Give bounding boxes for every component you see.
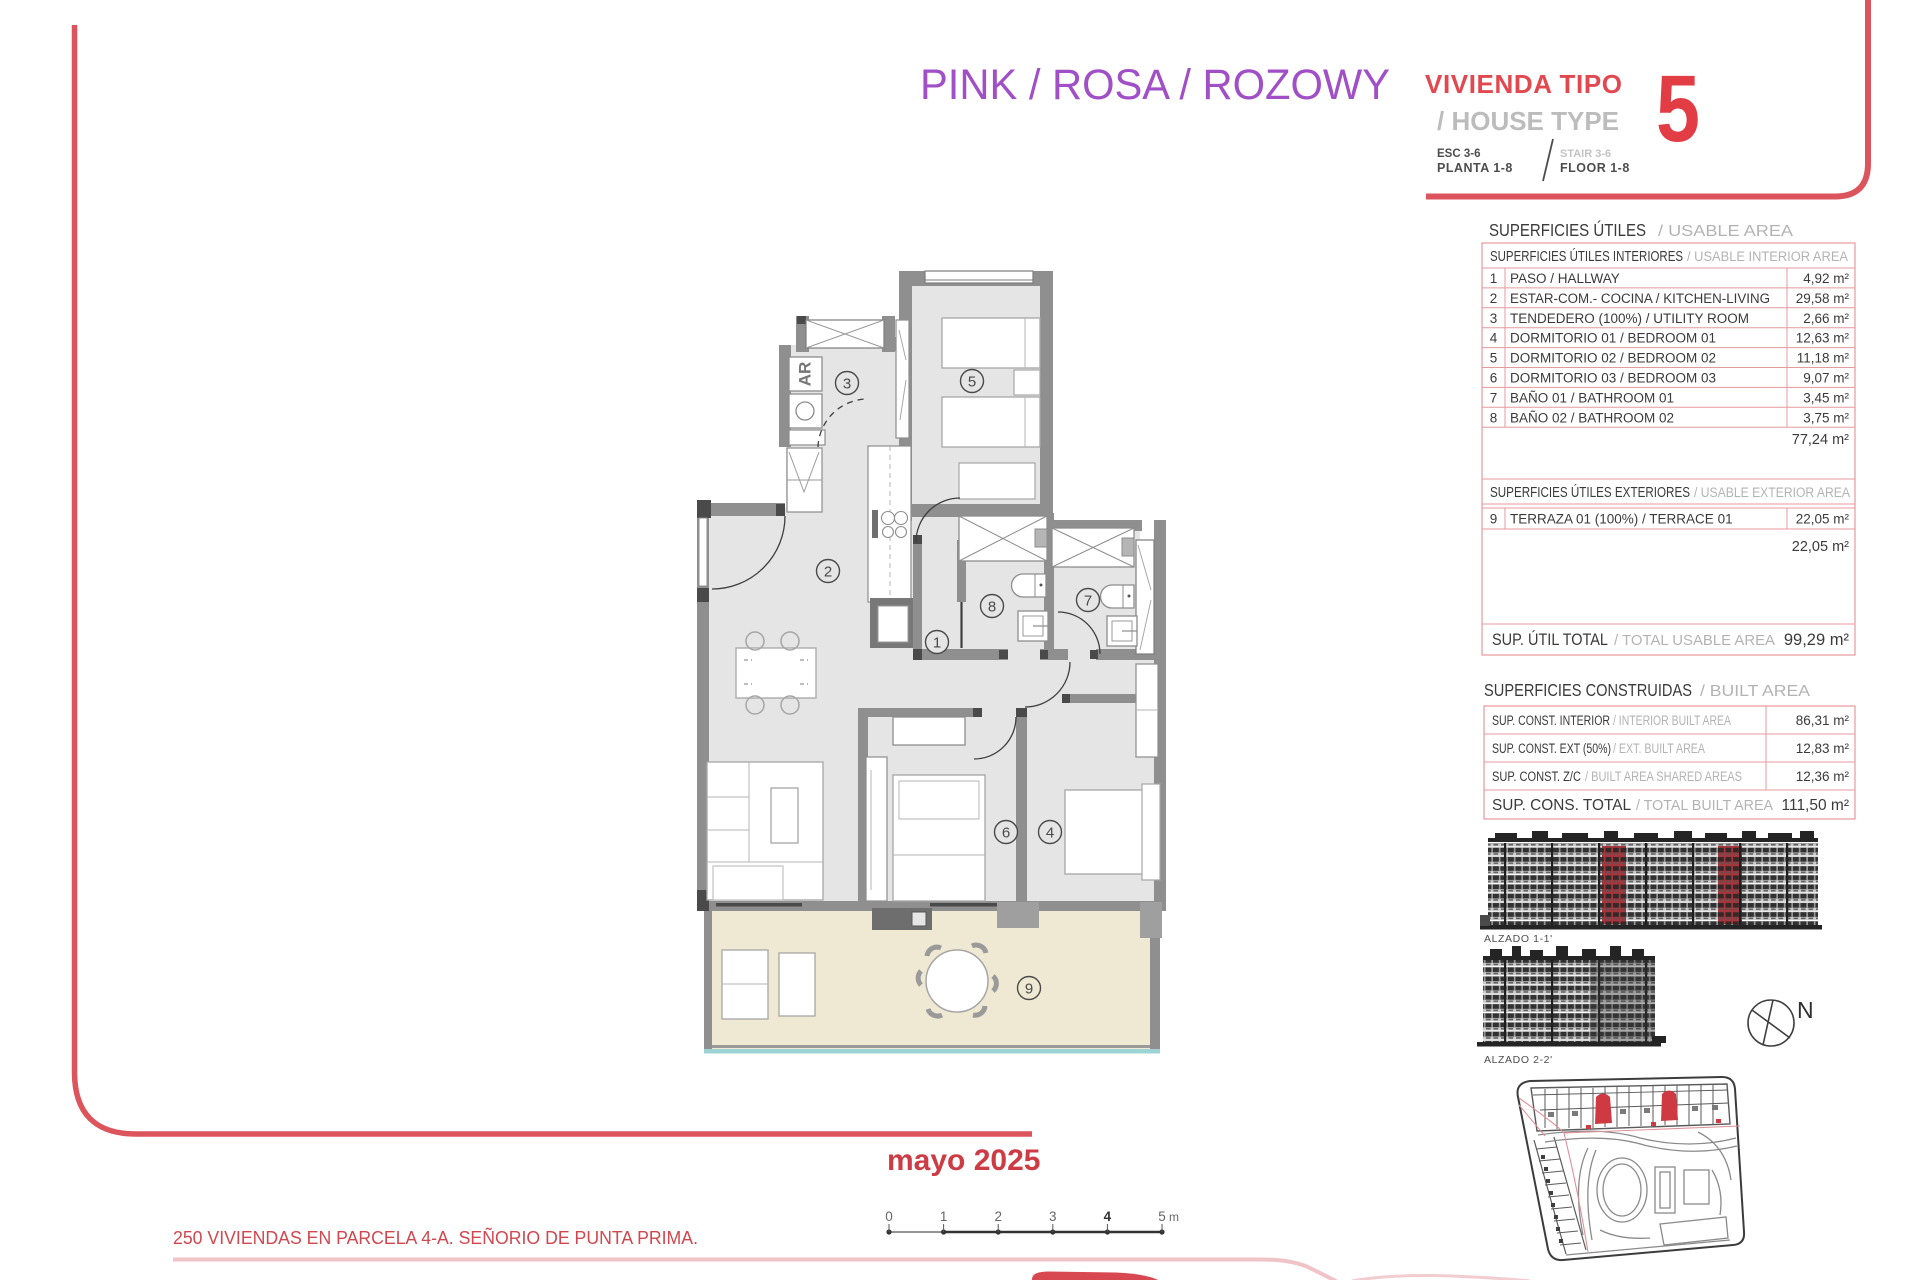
- svg-text:12,63 m²: 12,63 m²: [1796, 331, 1850, 346]
- svg-text:SUPERFICIES ÚTILES EXTERIORES: SUPERFICIES ÚTILES EXTERIORES: [1490, 484, 1690, 501]
- svg-text:4: 4: [1046, 825, 1054, 842]
- svg-text:m: m: [1169, 1210, 1179, 1224]
- svg-text:9: 9: [1490, 512, 1498, 527]
- svg-text:ESTAR-COM.- COCINA / KITCHEN-L: ESTAR-COM.- COCINA / KITCHEN-LIVING: [1510, 291, 1770, 306]
- svg-text:12,36 m²: 12,36 m²: [1796, 769, 1850, 784]
- svg-text:PASO / HALLWAY: PASO / HALLWAY: [1510, 271, 1620, 286]
- svg-text:/ TOTAL BUILT AREA: / TOTAL BUILT AREA: [1636, 798, 1773, 814]
- svg-text:8: 8: [988, 599, 996, 616]
- svg-text:4: 4: [1490, 331, 1498, 346]
- svg-text:4: 4: [1104, 1209, 1112, 1224]
- svg-text:86,31 m²: 86,31 m²: [1796, 713, 1850, 728]
- svg-text:SUP. CONST. Z/C: SUP. CONST. Z/C: [1492, 769, 1581, 784]
- svg-text:SUPERFICIES ÚTILES INTERIORES: SUPERFICIES ÚTILES INTERIORES: [1490, 248, 1683, 265]
- svg-text:9,07 m²: 9,07 m²: [1803, 371, 1849, 386]
- svg-text:250 VIVIENDAS EN PARCELA 4-A.: 250 VIVIENDAS EN PARCELA 4-A. SEÑORIO DE…: [173, 1227, 698, 1248]
- svg-text:3,75 m²: 3,75 m²: [1803, 410, 1849, 425]
- svg-text:2: 2: [824, 564, 832, 581]
- svg-text:TERRAZA 01 (100%) / TERRACE 01: TERRAZA 01 (100%) / TERRACE 01: [1510, 512, 1733, 527]
- svg-text:AR: AR: [795, 362, 814, 387]
- svg-text:FLOOR 1-8: FLOOR 1-8: [1560, 161, 1630, 175]
- svg-text:5: 5: [1656, 56, 1700, 162]
- svg-text:DORMITORIO 01 / BEDROOM 01: DORMITORIO 01 / BEDROOM 01: [1510, 331, 1716, 346]
- svg-text:BAÑO 01 / BATHROOM 01: BAÑO 01 / BATHROOM 01: [1510, 390, 1674, 405]
- svg-text:8: 8: [1490, 410, 1498, 425]
- svg-text:TENDEDERO (100%) / UTILITY ROO: TENDEDERO (100%) / UTILITY ROOM: [1510, 311, 1749, 326]
- svg-text:22,05 m²: 22,05 m²: [1796, 512, 1850, 527]
- svg-text:ESC 3-6: ESC 3-6: [1437, 148, 1480, 160]
- svg-text:/ BUILT AREA: / BUILT AREA: [1700, 683, 1810, 700]
- svg-text:/ USABLE AREA: / USABLE AREA: [1658, 223, 1793, 240]
- svg-text:2,66 m²: 2,66 m²: [1803, 311, 1849, 326]
- svg-text:3: 3: [1049, 1209, 1057, 1224]
- svg-text:/ TOTAL USABLE AREA: / TOTAL USABLE AREA: [1614, 632, 1775, 649]
- svg-text:PINK / ROSA / ROZOWY: PINK / ROSA / ROZOWY: [920, 61, 1390, 109]
- svg-text:SUP. ÚTIL TOTAL: SUP. ÚTIL TOTAL: [1492, 630, 1608, 649]
- svg-text:/ USABLE INTERIOR AREA: / USABLE INTERIOR AREA: [1687, 249, 1848, 264]
- svg-text:5: 5: [1490, 351, 1498, 366]
- svg-text:N: N: [1797, 997, 1814, 1023]
- svg-text:4,92 m²: 4,92 m²: [1803, 271, 1849, 286]
- svg-text:SUP. CONST. EXT (50%): SUP. CONST. EXT (50%): [1492, 741, 1611, 756]
- svg-text:3,45 m²: 3,45 m²: [1803, 390, 1849, 405]
- svg-text:12,83 m²: 12,83 m²: [1796, 741, 1850, 756]
- svg-text:DORMITORIO 03 / BEDROOM 03: DORMITORIO 03 / BEDROOM 03: [1510, 371, 1716, 386]
- svg-text:1: 1: [1490, 271, 1498, 286]
- svg-text:SUP. CONST. INTERIOR: SUP. CONST. INTERIOR: [1492, 713, 1610, 728]
- svg-text:11,18 m²: 11,18 m²: [1797, 351, 1850, 366]
- svg-text:/ HOUSE TYPE: / HOUSE TYPE: [1437, 106, 1619, 136]
- svg-text:5: 5: [1158, 1209, 1166, 1224]
- svg-text:0: 0: [885, 1209, 893, 1224]
- svg-text:PLANTA 1-8: PLANTA 1-8: [1437, 161, 1513, 175]
- svg-text:/ EXT. BUILT AREA: / EXT. BUILT AREA: [1613, 741, 1705, 756]
- svg-text:1: 1: [933, 635, 941, 652]
- svg-text:6: 6: [1490, 371, 1498, 386]
- svg-text:29,58 m²: 29,58 m²: [1796, 291, 1850, 306]
- svg-text:VIVIENDA TIPO: VIVIENDA TIPO: [1425, 69, 1622, 99]
- svg-text:1: 1: [940, 1209, 948, 1224]
- svg-text:22,05 m²: 22,05 m²: [1792, 539, 1849, 555]
- svg-text:/ BUILT AREA SHARED AREAS: / BUILT AREA SHARED AREAS: [1585, 769, 1742, 784]
- svg-text:3: 3: [1490, 311, 1498, 326]
- svg-text:99,29 m²: 99,29 m²: [1784, 631, 1850, 649]
- svg-text:STAIR 3-6: STAIR 3-6: [1560, 148, 1611, 160]
- svg-text:SUPERFICIES CONSTRUIDAS: SUPERFICIES CONSTRUIDAS: [1484, 680, 1692, 700]
- svg-text:6: 6: [1002, 825, 1010, 842]
- svg-text:2: 2: [994, 1209, 1002, 1224]
- svg-text:BAÑO 02 / BATHROOM 02: BAÑO 02 / BATHROOM 02: [1510, 410, 1674, 425]
- svg-text:9: 9: [1025, 981, 1033, 998]
- svg-text:111,50 m²: 111,50 m²: [1782, 797, 1850, 814]
- svg-text:SUP. CONS. TOTAL: SUP. CONS. TOTAL: [1492, 797, 1631, 814]
- svg-text:3: 3: [843, 376, 851, 393]
- svg-text:77,24 m²: 77,24 m²: [1792, 432, 1849, 448]
- svg-text:5: 5: [968, 374, 976, 391]
- svg-text:mayo 2025: mayo 2025: [887, 1144, 1040, 1177]
- svg-text:DORMITORIO 02 / BEDROOM 02: DORMITORIO 02 / BEDROOM 02: [1510, 351, 1716, 366]
- svg-text:/ USABLE EXTERIOR AREA: / USABLE EXTERIOR AREA: [1694, 485, 1850, 500]
- svg-text:/ INTERIOR BUILT AREA: / INTERIOR BUILT AREA: [1613, 713, 1731, 728]
- svg-text:SUPERFICIES ÚTILES: SUPERFICIES ÚTILES: [1489, 219, 1646, 240]
- svg-text:ALZADO 1-1': ALZADO 1-1': [1484, 933, 1553, 945]
- svg-text:2: 2: [1490, 291, 1498, 306]
- svg-text:7: 7: [1490, 390, 1498, 405]
- svg-text:7: 7: [1084, 593, 1092, 610]
- svg-text:ALZADO 2-2': ALZADO 2-2': [1484, 1054, 1553, 1066]
